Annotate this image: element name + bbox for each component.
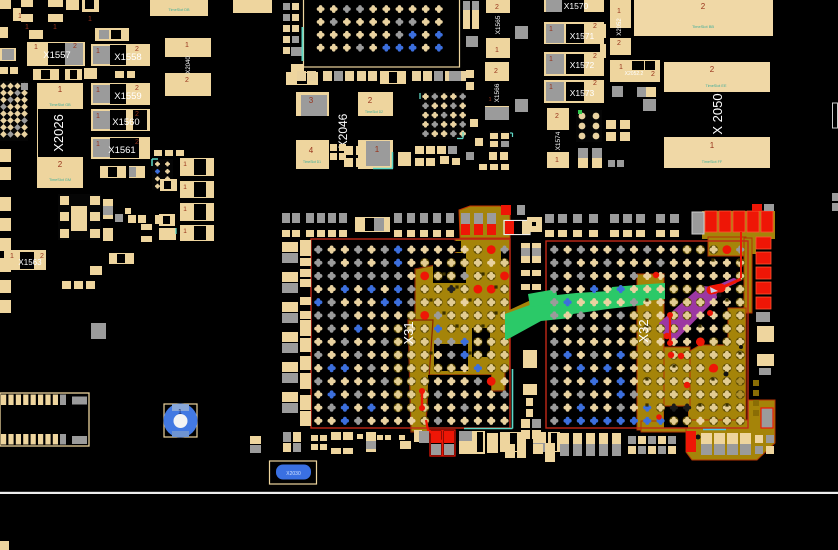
svg-text:4: 4 <box>309 146 314 155</box>
svg-text:TimeSlot BB: TimeSlot BB <box>692 24 714 29</box>
svg-text:2: 2 <box>73 43 77 50</box>
svg-text:1: 1 <box>88 16 92 23</box>
svg-text:X1558: X1558 <box>114 52 141 63</box>
svg-text:1: 1 <box>53 24 57 31</box>
svg-text:X1566: X1566 <box>494 83 501 102</box>
svg-text:1: 1 <box>178 409 182 416</box>
svg-text:1: 1 <box>549 26 553 33</box>
svg-text:X1574: X1574 <box>555 131 562 150</box>
svg-text:1: 1 <box>96 113 100 120</box>
svg-text:X2052: X2052 <box>617 18 623 36</box>
svg-text:X2030: X2030 <box>286 471 301 477</box>
svg-text:2: 2 <box>495 4 499 11</box>
svg-text:X2026: X2026 <box>51 114 66 152</box>
svg-text:3: 3 <box>309 96 314 105</box>
svg-text:X1571: X1571 <box>570 31 595 41</box>
svg-text:1: 1 <box>549 84 553 91</box>
svg-text:1: 1 <box>549 56 553 63</box>
svg-text:TimeSlot D1: TimeSlot D1 <box>303 160 321 164</box>
svg-text:TimeSlot FF: TimeSlot FF <box>702 160 723 164</box>
svg-text:TimeSlot D2: TimeSlot D2 <box>365 110 383 114</box>
svg-text:2: 2 <box>617 40 621 47</box>
svg-text:1: 1 <box>183 228 187 235</box>
svg-text:1: 1 <box>710 141 715 150</box>
svg-text:2: 2 <box>593 53 597 60</box>
svg-text:X1570: X1570 <box>564 1 589 11</box>
svg-text:1: 1 <box>34 44 38 51</box>
svg-text:TimeSlot EE: TimeSlot EE <box>706 84 727 88</box>
svg-text:1: 1 <box>183 184 187 191</box>
svg-text:2: 2 <box>593 23 597 30</box>
svg-text:X1572: X1572 <box>570 60 595 70</box>
svg-text:1: 1 <box>96 141 100 148</box>
svg-text:TimeSlot DB: TimeSlot DB <box>168 8 190 12</box>
svg-text:2: 2 <box>651 71 655 78</box>
svg-text:1: 1 <box>495 47 499 54</box>
svg-text:2: 2 <box>58 160 63 169</box>
svg-text:X2052.2: X2052.2 <box>625 71 644 77</box>
svg-text:1: 1 <box>183 161 187 168</box>
svg-text:2: 2 <box>701 2 706 11</box>
svg-text:2: 2 <box>494 68 498 75</box>
svg-text:2: 2 <box>710 65 715 74</box>
svg-text:1: 1 <box>619 64 623 71</box>
svg-text:1: 1 <box>58 85 63 94</box>
svg-text:1: 1 <box>183 206 187 213</box>
svg-text:X1559: X1559 <box>114 91 141 102</box>
svg-text:1: 1 <box>96 87 100 94</box>
svg-text:1: 1 <box>617 8 621 15</box>
svg-text:1: 1 <box>488 97 491 103</box>
svg-text:2: 2 <box>185 77 189 84</box>
svg-text:X1563: X1563 <box>18 258 42 267</box>
svg-text:X1561: X1561 <box>108 145 135 156</box>
svg-text:1: 1 <box>375 145 380 154</box>
svg-text:X31: X31 <box>401 321 416 344</box>
svg-text:1: 1 <box>25 24 29 31</box>
svg-text:X1573: X1573 <box>570 88 595 98</box>
svg-text:1: 1 <box>555 157 559 164</box>
svg-text:TimeSlot GM: TimeSlot GM <box>49 178 71 182</box>
svg-text:X2046: X2046 <box>336 113 350 148</box>
svg-text:2: 2 <box>555 113 559 120</box>
svg-text:2: 2 <box>593 80 597 87</box>
svg-text:TimeSlot GB: TimeSlot GB <box>49 103 71 107</box>
svg-text:X2040: X2040 <box>186 56 192 74</box>
svg-text:X32: X32 <box>636 319 651 342</box>
svg-text:2: 2 <box>368 96 373 105</box>
svg-text:X1557: X1557 <box>43 50 70 61</box>
svg-text:X 2050: X 2050 <box>710 93 725 134</box>
svg-text:1: 1 <box>96 48 100 55</box>
svg-text:X1560: X1560 <box>112 117 139 128</box>
svg-text:X1565: X1565 <box>495 15 502 34</box>
svg-text:1: 1 <box>185 42 189 49</box>
